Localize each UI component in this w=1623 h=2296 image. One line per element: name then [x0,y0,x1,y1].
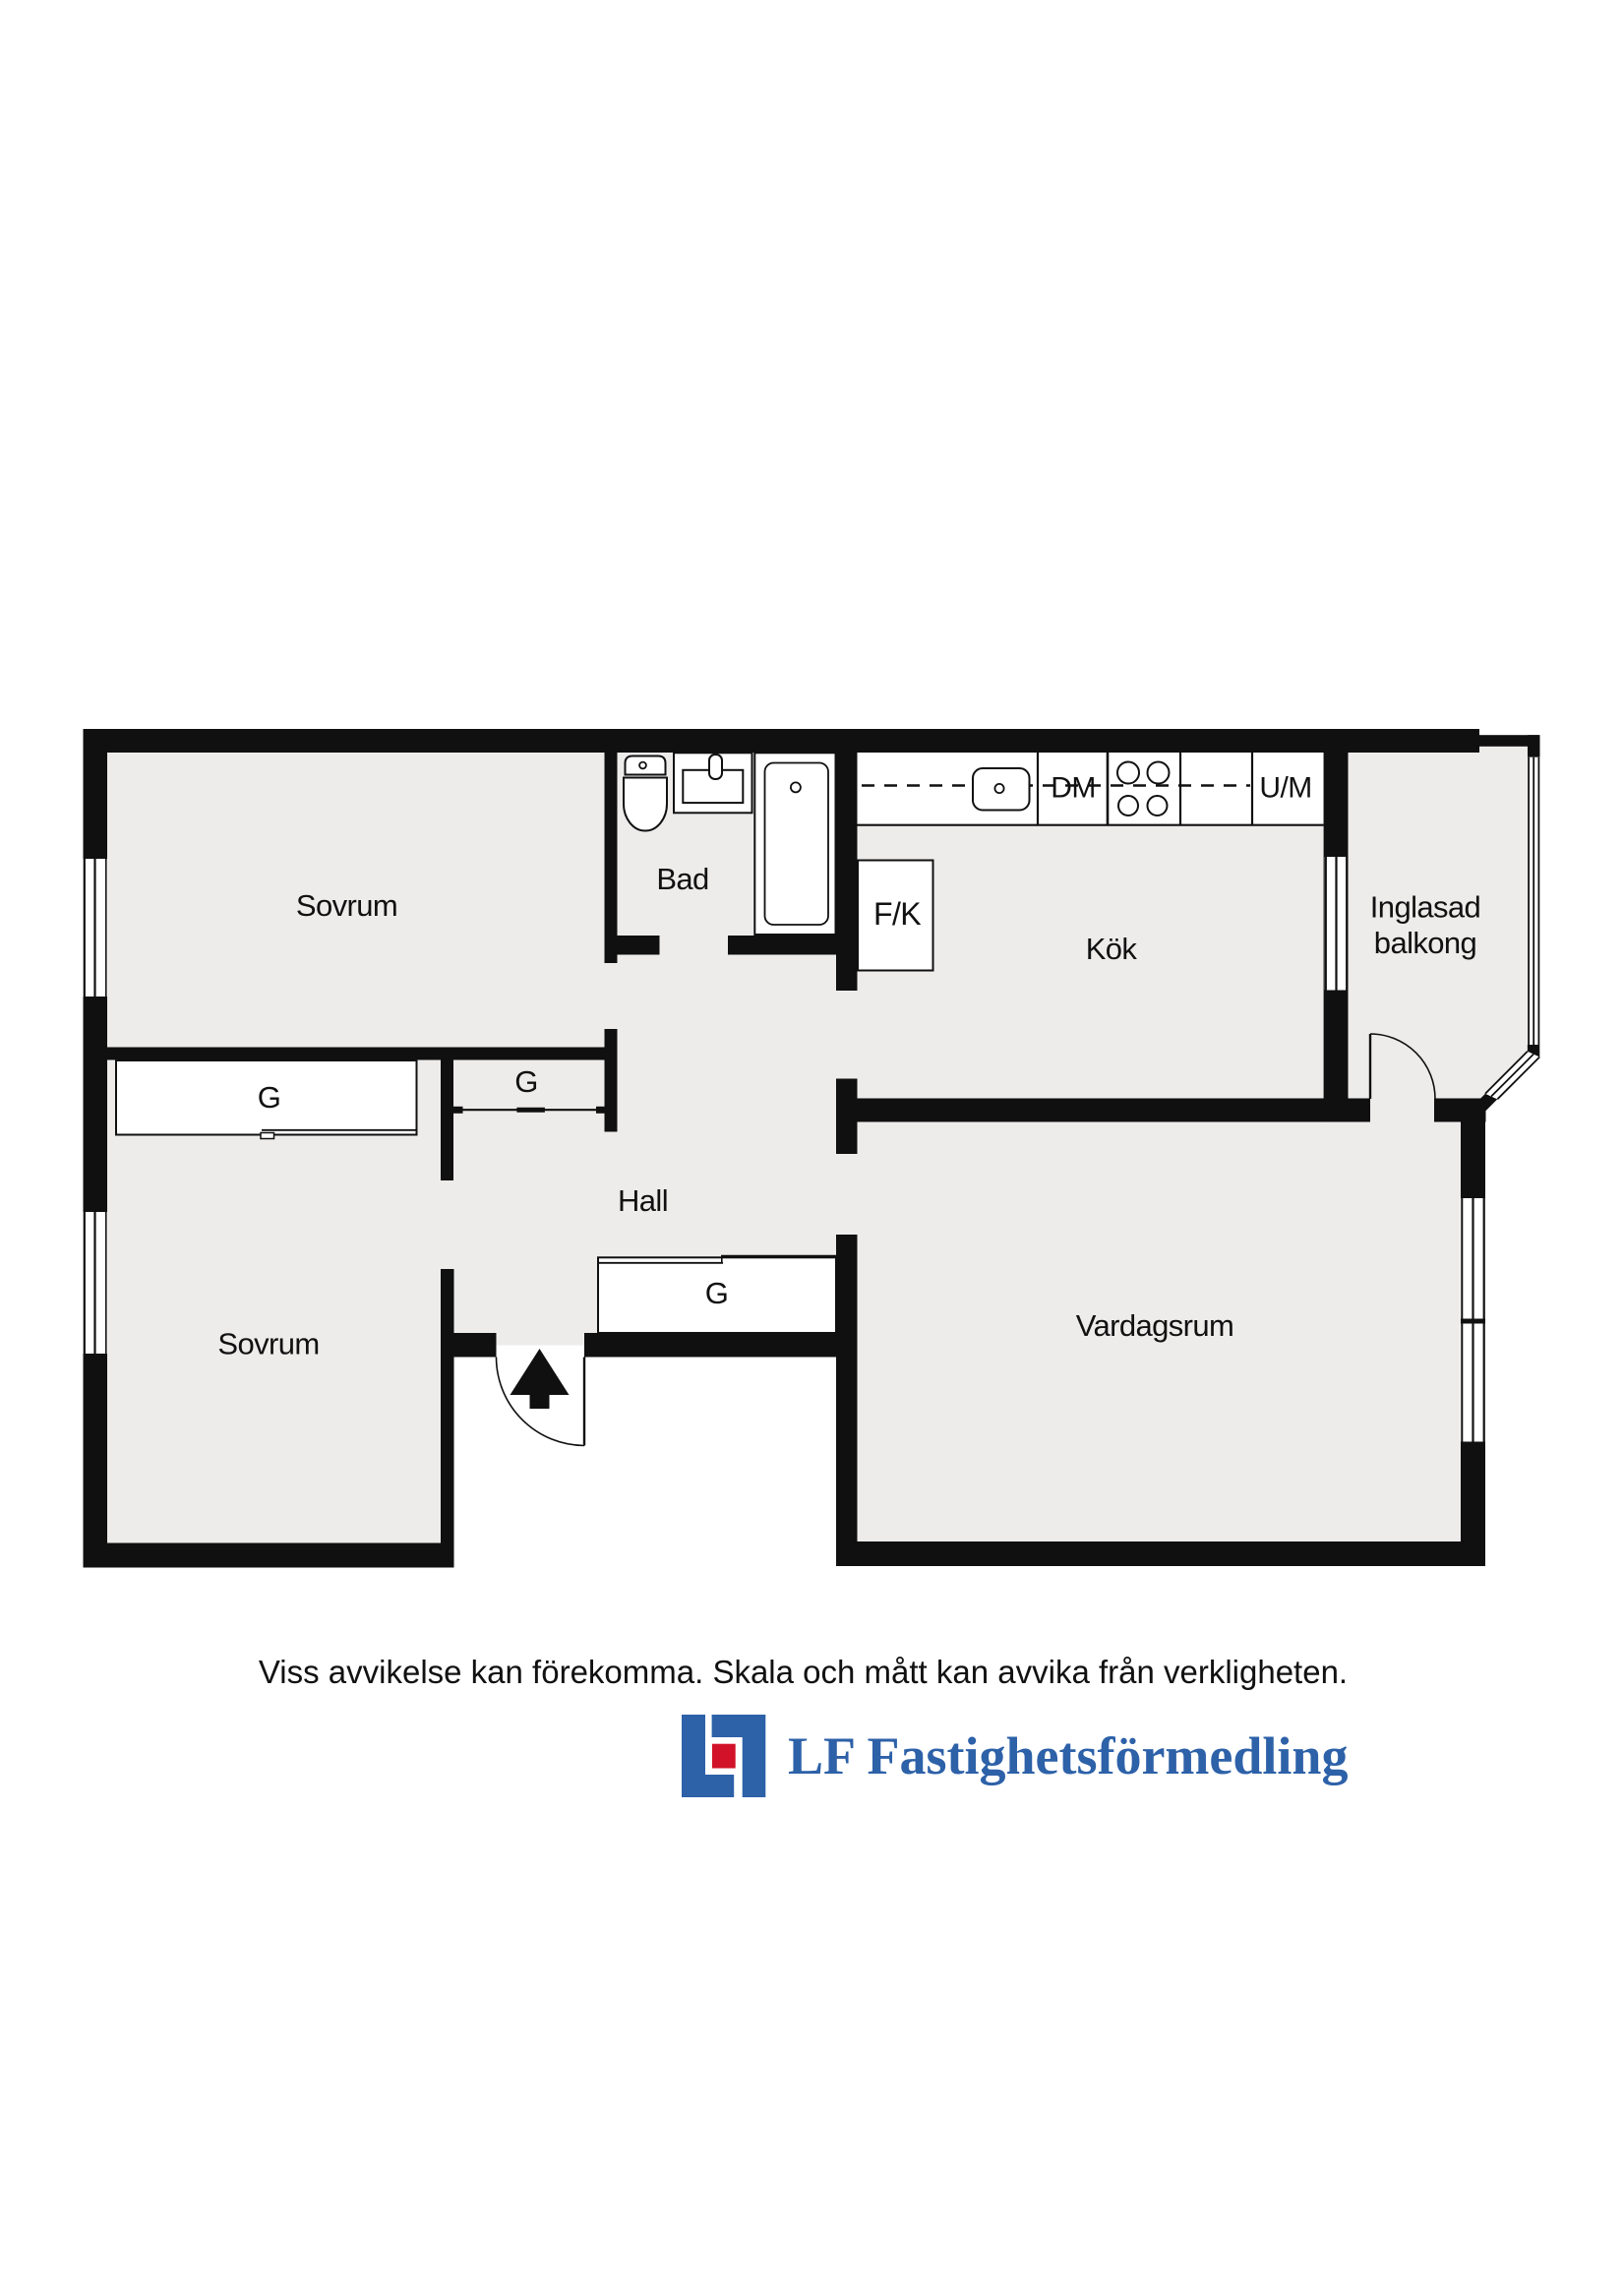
svg-text:DM: DM [1051,772,1095,805]
svg-text:LF Fastighetsförmedling: LF Fastighetsförmedling [788,1726,1348,1785]
svg-text:Bad: Bad [656,862,708,896]
svg-text:Sovrum: Sovrum [217,1327,319,1361]
svg-text:G: G [514,1064,538,1099]
svg-text:Inglasad: Inglasad [1370,890,1480,925]
svg-text:U/M: U/M [1259,772,1311,805]
svg-text:Viss avvikelse kan förekomma.: Viss avvikelse kan förekomma. Skala och … [259,1654,1348,1690]
svg-text:Hall: Hall [618,1183,668,1218]
svg-text:G: G [258,1080,281,1115]
svg-text:balkong: balkong [1374,926,1476,960]
svg-text:Kök: Kök [1086,932,1138,966]
svg-text:G: G [705,1276,729,1310]
svg-text:Vardagsrum: Vardagsrum [1076,1308,1234,1343]
svg-text:F/K: F/K [873,896,921,932]
svg-text:Sovrum: Sovrum [296,888,397,923]
